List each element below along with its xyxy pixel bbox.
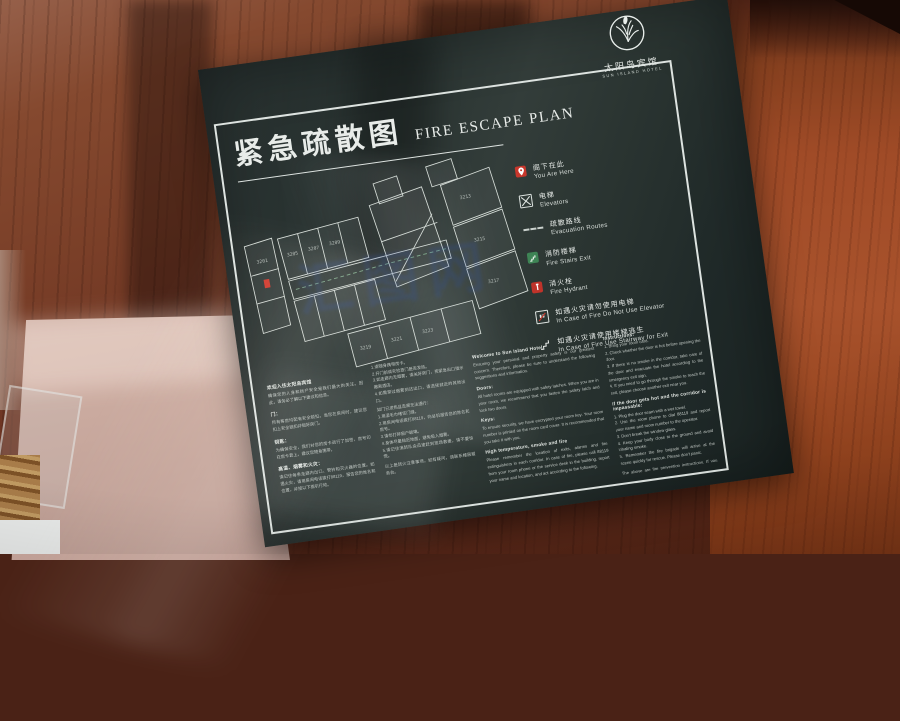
en-door-hot-list: 1. Plug the door seam with a wet towel. … bbox=[613, 401, 716, 468]
info-column-en-instructions: Instructions: 1. Bring your room card. 2… bbox=[602, 319, 718, 475]
info-column-zh-welcome: 欢迎入住太阳岛宾馆 确保您的人身和财产安全是我们最大的关注。因此，请务必了解以下… bbox=[266, 366, 381, 522]
left-light-strip bbox=[0, 250, 26, 410]
dashed-route-icon bbox=[523, 227, 543, 232]
sign-inner-frame: 紧急疏散图 FIRE ESCAPE PLAN bbox=[214, 60, 729, 534]
no-elevator-icon bbox=[535, 309, 550, 324]
lily-flower-icon bbox=[603, 9, 650, 56]
elevator-icon bbox=[519, 194, 534, 209]
floor-edge bbox=[0, 520, 60, 554]
red-hydrant-icon bbox=[531, 281, 543, 293]
info-column-en-welcome: Welcome to Sun Island Hotel Ensuring you… bbox=[471, 334, 612, 494]
you-are-here-pin-icon bbox=[515, 165, 527, 177]
info-column-zh-instructions: 1.请随身携带房卡。 2.开门前请先检查门是否发热。 3.如走廊内无烟雾，请关好… bbox=[371, 352, 482, 507]
zh-door-hot-list: 如门已发热且走廊无法通行： 1.用湿毛巾堵住门缝。 2.用房间电话拨打88119… bbox=[377, 395, 475, 461]
title-zh: 紧急疏散图 bbox=[231, 108, 405, 173]
fire-escape-sign-panel: 太阳岛宾馆 SUN ISLAND HOTEL 紧急疏散图 FIRE ESCAPE… bbox=[198, 0, 794, 547]
title-en: FIRE ESCAPE PLAN bbox=[414, 105, 576, 148]
green-stairs-icon bbox=[527, 252, 539, 264]
en-instructions-list: 1. Bring your room card. 2. Check whethe… bbox=[604, 331, 707, 398]
